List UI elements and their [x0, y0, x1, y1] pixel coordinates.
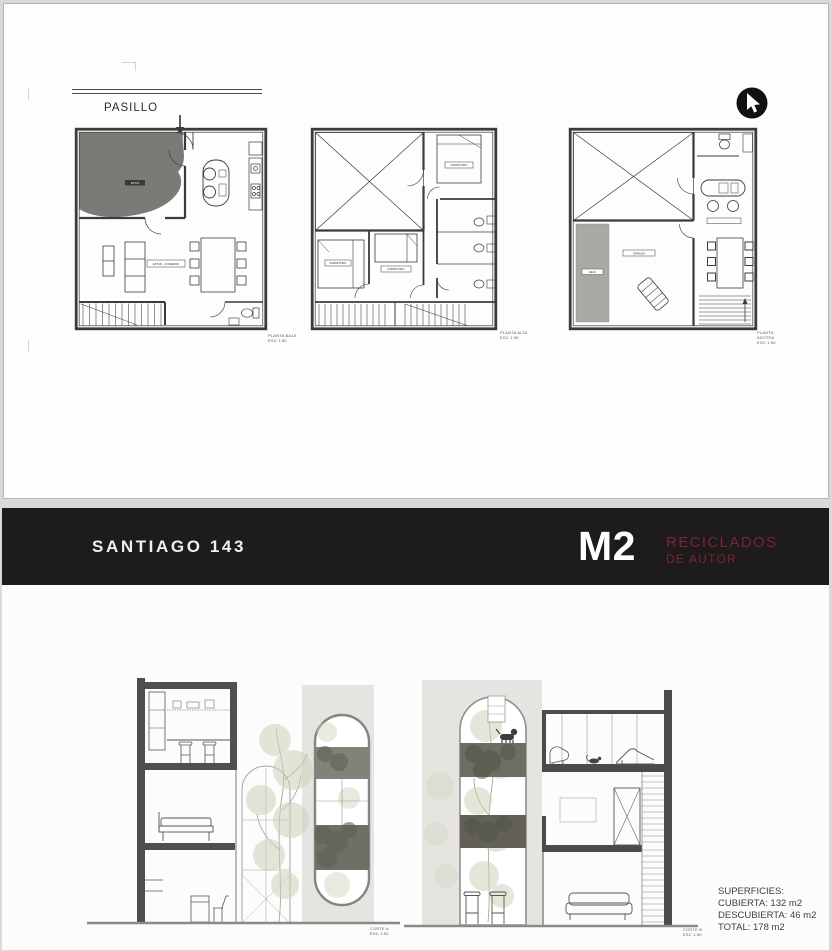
terrace-bathroom	[697, 134, 753, 156]
cat-silhouette	[587, 755, 602, 764]
toilet-icon	[474, 218, 484, 226]
plans-sheet: PASILLO PATIO	[3, 3, 829, 499]
bidet-icon	[474, 244, 484, 252]
room-labels: DORMITORIO DORMITORIO DORMITORIO	[325, 162, 473, 272]
stairs	[316, 302, 496, 326]
m2-logo: M2	[578, 523, 636, 570]
surfaces-summary: SUPERFICIES: CUBIERTA: 132 m2 DESCUBIERT…	[718, 886, 816, 934]
patio-tree-canopy	[80, 133, 184, 218]
svg-text:DECK: DECK	[589, 270, 596, 274]
chair-icon	[213, 896, 229, 922]
surfaces-heading: SUPERFICIES:	[718, 886, 816, 898]
plan-planta-azotea: DECK TERRAZA	[567, 126, 759, 332]
stool-icon	[728, 201, 739, 212]
bedroom-3	[375, 231, 424, 299]
corte-a-caption: CORTE AESC 1:50	[370, 926, 389, 936]
glazing-mullions	[562, 714, 637, 764]
sections-sheet: SANTIAGO 143 M2 RECICLADOS DE AUTOR	[2, 508, 829, 950]
top-floor-kitchen	[149, 692, 236, 763]
plan-planta-baja: PATIO	[73, 126, 269, 332]
crop-mark	[135, 62, 136, 71]
void-double-height	[574, 133, 694, 221]
stairs	[699, 296, 751, 324]
stair-hatch	[642, 772, 664, 925]
plan-planta-alta: DORMITORIO DORMITORIO DORMITORIO	[309, 126, 499, 332]
void-double-height	[316, 133, 424, 231]
room-label: ESTAR - COMEDOR	[153, 262, 179, 266]
svg-text:DORMITORIO: DORMITORIO	[330, 261, 347, 265]
artwork-frame	[560, 798, 596, 822]
toilet-icon	[474, 280, 484, 288]
hanging-cabinet	[488, 696, 505, 722]
project-title: SANTIAGO 143	[92, 537, 246, 557]
toilet-icon	[720, 140, 730, 149]
crop-mark	[122, 62, 136, 63]
kitchen-island	[203, 160, 229, 206]
bathrooms	[437, 199, 496, 298]
bar-stool-icon	[179, 742, 192, 763]
section-corte-a	[87, 670, 402, 948]
sofa	[103, 242, 145, 292]
structure-poche	[542, 690, 672, 925]
plan3-caption: PLANTAAZOTEAESC 1:50	[757, 330, 776, 345]
structure-poche	[137, 678, 237, 923]
outer-wall	[312, 129, 496, 329]
dining-table	[190, 238, 246, 292]
bed	[437, 135, 481, 183]
terrace-dining-table	[708, 238, 754, 288]
plan2-caption: PLANTA ALTAESC 1:50	[500, 330, 528, 340]
bathroom	[210, 302, 263, 325]
living-door-arc	[145, 218, 161, 234]
plan1-caption: PLANTA BAJAESC 1:50	[268, 333, 296, 343]
bar-stool-icon	[203, 742, 216, 763]
stairs	[80, 302, 166, 326]
chaise-lounge-icon	[616, 749, 654, 764]
corte-b-caption: CORTE BESC 1:50	[683, 927, 702, 937]
wardrobe	[614, 788, 640, 845]
svg-text:DORMITORIO: DORMITORIO	[388, 267, 405, 271]
svg-text:TERRAZA: TERRAZA	[633, 251, 645, 255]
svg-text:DORMITORIO: DORMITORIO	[451, 163, 468, 167]
terrace-bar	[701, 180, 745, 224]
cursor-pointer-icon[interactable]	[735, 86, 769, 120]
corridor-label: PASILLO	[104, 102, 158, 114]
surface-row: DESCUBIERTA: 46 m2	[718, 910, 816, 922]
m2-logo-subtitle: RECICLADOS DE AUTOR	[666, 534, 778, 566]
title-bar: SANTIAGO 143 M2 RECICLADOS DE AUTOR	[2, 508, 829, 585]
patio-label: PATIO	[131, 181, 140, 185]
presentation-page: { "top_panel": { "corridor_label": "PASI…	[0, 0, 832, 950]
stool-icon	[708, 201, 719, 212]
kitchen-counter	[249, 142, 262, 210]
corridor-wall-line	[72, 89, 262, 94]
ground-floor-furniture	[145, 880, 229, 922]
surface-row: CUBIERTA: 132 m2	[718, 898, 816, 910]
armchair-icon	[550, 747, 569, 764]
toilet-icon	[242, 309, 253, 317]
crop-mark	[28, 340, 29, 352]
crop-mark	[28, 88, 29, 100]
sofa-elevation	[566, 893, 632, 920]
surface-row: TOTAL: 178 m2	[718, 922, 816, 934]
sun-lounger-icon	[637, 277, 670, 312]
section-corte-b	[402, 666, 702, 951]
bed-elevation	[159, 812, 213, 841]
